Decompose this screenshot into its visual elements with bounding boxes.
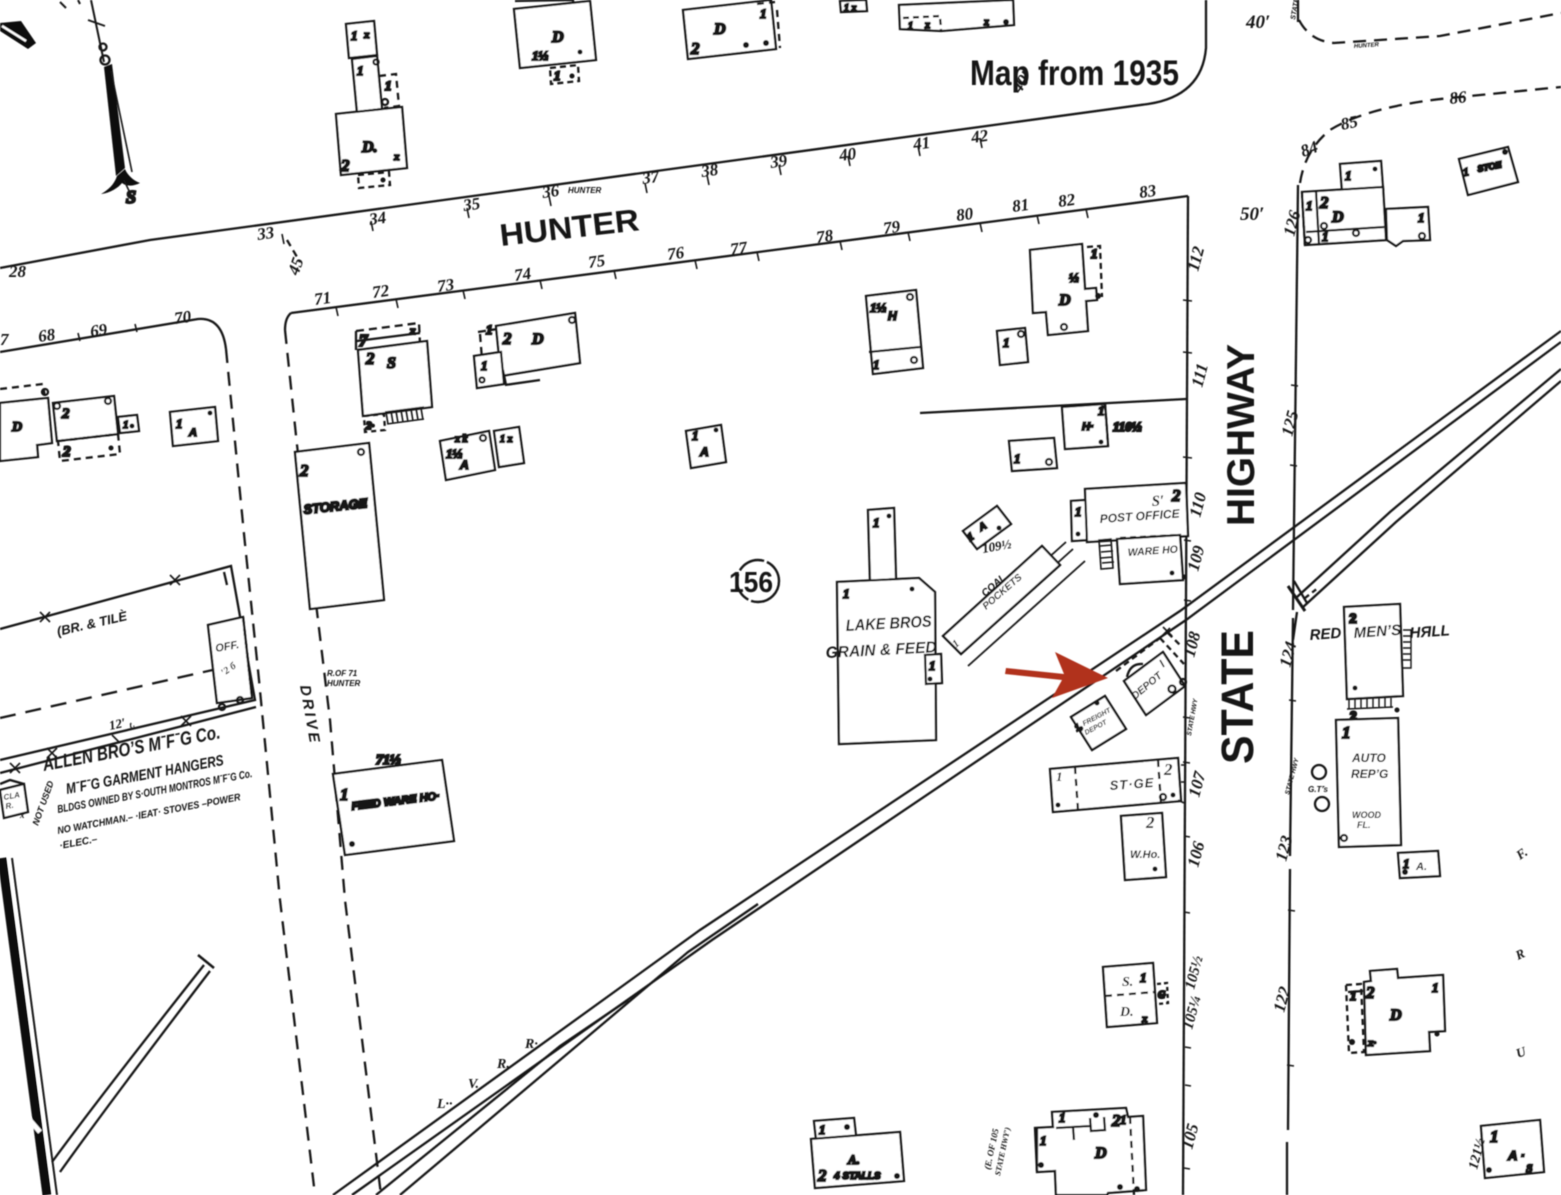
svg-text:40: 40 [837, 144, 858, 165]
svg-text:x k: x k [454, 434, 468, 445]
svg-text:D.: D. [361, 139, 378, 156]
svg-text:REP’G: REP’G [1351, 767, 1388, 781]
svg-text:2: 2 [1349, 610, 1357, 626]
svg-text:72: 72 [371, 281, 391, 302]
svg-text:2: 2 [1319, 193, 1329, 212]
svg-text:1: 1 [1345, 168, 1352, 183]
svg-text:1: 1 [1490, 1127, 1499, 1146]
svg-text:41: 41 [911, 133, 931, 154]
svg-text:½: ½ [1069, 270, 1079, 285]
svg-text:1: 1 [692, 428, 699, 443]
svg-text:1: 1 [1322, 229, 1329, 244]
svg-text:1: 1 [873, 357, 880, 372]
svg-text:75: 75 [587, 251, 607, 272]
svg-text:S: S [1526, 1161, 1533, 1175]
svg-text:ST·GE: ST·GE [1109, 775, 1155, 793]
svg-text:D: D [1331, 209, 1344, 226]
svg-text:x: x [924, 20, 930, 31]
svg-text:2·: 2· [365, 420, 375, 432]
svg-text:1: 1 [1059, 1110, 1066, 1125]
svg-text:R.: R. [496, 1057, 510, 1072]
svg-text:D: D [1389, 1007, 1402, 1024]
svg-text:x: x [1141, 1013, 1148, 1025]
svg-text:A.: A. [847, 1152, 860, 1167]
svg-text:1: 1 [176, 416, 183, 431]
svg-text:1 x: 1 x [844, 3, 857, 14]
svg-text:2: 2 [502, 329, 512, 348]
svg-text:x: x [363, 29, 370, 41]
svg-text:1: 1 [486, 322, 493, 337]
svg-text:x: x [983, 17, 989, 28]
svg-text:42: 42 [969, 126, 990, 147]
svg-text:1: 1 [1091, 246, 1098, 261]
svg-text:RED: RED [1309, 625, 1342, 644]
svg-text:110½: 110½ [1113, 419, 1142, 434]
svg-text:D: D [1058, 292, 1071, 309]
svg-text:x·: x· [1367, 1037, 1377, 1049]
svg-text:S: S [387, 355, 396, 372]
svg-text:WOOD: WOOD [1352, 810, 1381, 820]
svg-text:x: x [409, 325, 416, 337]
svg-text:1: 1 [1140, 970, 1147, 985]
svg-text:2: 2 [61, 406, 70, 422]
svg-text:1: 1 [873, 515, 880, 530]
svg-text:D: D [713, 21, 726, 38]
svg-text:D.: D. [1119, 1005, 1134, 1020]
svg-text:D: D [11, 420, 22, 435]
svg-text:D: D [551, 29, 564, 46]
svg-text:1: 1 [1075, 504, 1082, 519]
svg-text:A: A [459, 458, 469, 472]
svg-text:86: 86 [1448, 87, 1467, 108]
svg-text:70: 70 [173, 307, 193, 328]
svg-text:74: 74 [513, 264, 532, 285]
svg-text:A: A [699, 445, 709, 459]
svg-text:1: 1 [1003, 335, 1010, 350]
svg-text:1: 1 [929, 658, 936, 673]
svg-text:1: 1 [351, 28, 358, 43]
svg-text:S: S [126, 187, 136, 207]
svg-text:HIGHWAY: HIGHWAY [1220, 344, 1263, 526]
svg-text:1: 1 [908, 21, 913, 32]
svg-text:69: 69 [89, 320, 109, 341]
svg-text:1: 1 [385, 78, 392, 93]
svg-text:50′: 50′ [1240, 204, 1264, 225]
svg-text:FL.: FL. [1357, 820, 1371, 830]
svg-text:1: 1 [1056, 769, 1063, 784]
svg-text:AUTO: AUTO [1351, 751, 1386, 765]
svg-text:1: 1 [1418, 210, 1425, 225]
svg-text:W.Ho.: W.Ho. [1130, 849, 1160, 861]
svg-text:28: 28 [8, 262, 27, 281]
svg-text:1: 1 [1098, 403, 1105, 418]
svg-text:1: 1 [123, 419, 129, 431]
svg-text:HЯLL: HЯLL [1409, 622, 1450, 642]
svg-text:1 x: 1 x [500, 434, 513, 445]
svg-text:1: 1 [1120, 1112, 1127, 1127]
svg-text:2: 2 [1365, 983, 1375, 1002]
svg-text:Map from 1935: Map from 1935 [970, 54, 1179, 93]
svg-text:2: 2 [299, 461, 309, 480]
svg-text:2: 2 [817, 1166, 827, 1185]
svg-text:82: 82 [1057, 190, 1077, 211]
svg-text:79: 79 [882, 217, 902, 238]
svg-text:H: H [888, 309, 897, 323]
svg-text:2: 2 [1163, 760, 1173, 779]
svg-text:2: 2 [1145, 813, 1155, 832]
svg-text:R.OF 71: R.OF 71 [327, 669, 358, 678]
svg-text:HUNTER: HUNTER [327, 679, 361, 688]
svg-text:G: G [1158, 990, 1166, 1001]
svg-text:STATE: STATE [1212, 630, 1263, 764]
svg-text:71½: 71½ [376, 753, 401, 768]
svg-text:1½: 1½ [870, 300, 887, 315]
svg-text:H·: H· [1082, 421, 1094, 433]
svg-text:1: 1 [1350, 988, 1357, 1003]
svg-text:D: D [1094, 1145, 1107, 1162]
svg-text:36: 36 [540, 181, 561, 202]
svg-text:R·: R· [524, 1037, 538, 1052]
svg-text:L··: L·· [436, 1097, 453, 1112]
svg-text:71: 71 [313, 288, 332, 309]
svg-text:4 STALLS: 4 STALLS [833, 1171, 881, 1182]
svg-text:2: 2 [690, 39, 700, 58]
svg-text:1: 1 [357, 63, 364, 78]
svg-text:1: 1 [1014, 451, 1021, 466]
svg-text:76: 76 [666, 243, 686, 264]
svg-text:40′: 40′ [1245, 12, 1270, 33]
svg-text:G.T’̇s: G.T’̇s [1308, 785, 1329, 794]
svg-text:2: 2 [62, 444, 71, 460]
svg-text:1: 1 [1403, 856, 1410, 871]
svg-text:83: 83 [1138, 181, 1158, 202]
svg-text:1: 1 [554, 68, 561, 83]
svg-text:1: 1 [843, 586, 850, 601]
svg-text:39: 39 [768, 151, 789, 172]
svg-text:73: 73 [436, 275, 456, 296]
svg-text:HUNTER: HUNTER [568, 186, 602, 195]
svg-text:R.: R. [5, 801, 14, 811]
svg-text:156: 156 [729, 567, 773, 599]
svg-text:x: x [19, 810, 25, 820]
svg-text:1: 1 [1040, 1133, 1047, 1148]
svg-text:2: 2 [340, 156, 350, 175]
svg-text:35: 35 [461, 194, 482, 215]
svg-text:1: 1 [340, 785, 349, 804]
svg-text:1: 1 [1342, 723, 1351, 742]
svg-text:2: 2 [365, 349, 375, 368]
svg-text:MEN’S: MEN’S [1353, 622, 1402, 642]
svg-text:D: D [531, 331, 544, 348]
svg-text:1½: 1½ [532, 48, 549, 63]
svg-text:38: 38 [699, 160, 720, 181]
svg-text:34: 34 [367, 208, 387, 229]
svg-text:1: 1 [819, 1122, 826, 1137]
svg-text:78: 78 [815, 226, 835, 247]
svg-text:33: 33 [255, 223, 276, 244]
svg-text:x: x [393, 151, 400, 163]
svg-text:A.: A. [1415, 861, 1427, 873]
svg-text:81: 81 [1011, 195, 1030, 216]
svg-text:V.: V. [468, 1077, 479, 1092]
svg-text:S.: S. [1122, 975, 1133, 990]
svg-text:1: 1 [760, 6, 767, 21]
svg-text:1: 1 [1432, 980, 1439, 995]
svg-text:2: 2 [1171, 486, 1181, 505]
svg-text:1: 1 [481, 358, 488, 373]
svg-text:1: 1 [1306, 198, 1313, 213]
svg-text:80: 80 [955, 204, 975, 225]
svg-text:A: A [188, 427, 197, 439]
svg-text:A ·: A · [1507, 1148, 1525, 1163]
svg-text:68: 68 [37, 325, 57, 346]
